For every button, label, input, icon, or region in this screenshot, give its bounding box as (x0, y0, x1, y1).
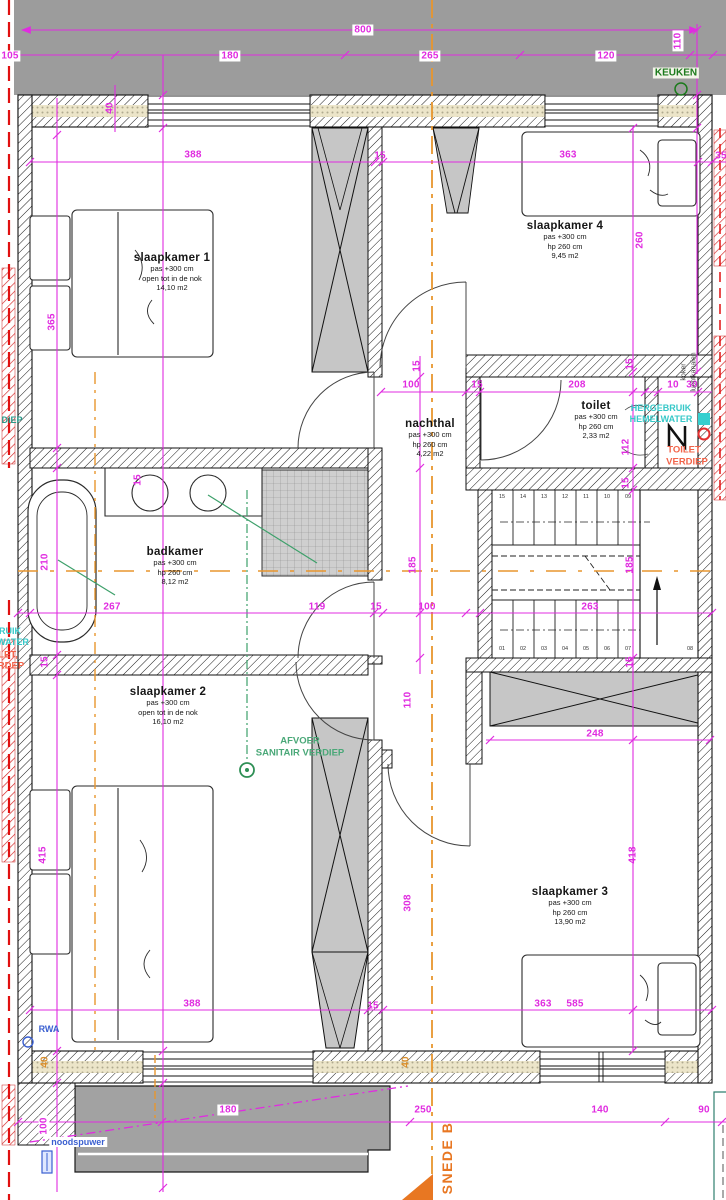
room-detail-line: hp 260 cm (527, 242, 604, 252)
stair-tread-number: 11 (583, 494, 589, 500)
dimension-label: 260 (635, 231, 646, 248)
dimension-label: 120 (595, 51, 616, 62)
dimension-label: 90 (698, 1105, 710, 1116)
room-detail-line: 4,22 m2 (405, 449, 455, 459)
room-detail-line: 13,90 m2 (532, 917, 609, 927)
stair-tread-number: 03 (541, 646, 547, 652)
dimension-label: 40 (401, 1056, 412, 1068)
shower-tiles (262, 470, 370, 576)
dimension-label: 119 (309, 602, 326, 613)
dimension-label: 10 (667, 380, 679, 391)
dimension-label: 185 (408, 556, 419, 573)
stair-tread-number: 09 (625, 494, 631, 500)
stair-tread-number: 14 (520, 494, 526, 500)
toilet-verdiep-line1: TOILET (667, 445, 701, 456)
dimension-label: 15 (40, 656, 51, 668)
toilet-verdiep-line2: VERDIEP (666, 457, 708, 468)
dimension-label: 180 (217, 1105, 238, 1116)
stair-tread-number: 05 (583, 646, 589, 652)
dimension-label: 15 (374, 151, 386, 162)
room-label-slaapkamer-4: slaapkamer 4pas +300 cmhp 260 cm9,45 m2 (527, 220, 604, 261)
stair-tread-number: 02 (520, 646, 526, 652)
staircase (492, 490, 661, 658)
dimension-label: 110 (403, 692, 414, 709)
edge-fragment-ruik: RUIK (0, 626, 21, 636)
snede-b-label: SNEDE B (439, 1122, 455, 1195)
room-detail-line: pas +300 cm (147, 558, 204, 568)
dimension-label: 112 (621, 439, 632, 456)
dimension-label: 363 (559, 150, 576, 161)
edge-fragment-rdep: RDEP (0, 661, 24, 672)
stair-tread-number: 07 (625, 646, 631, 652)
dimension-label: 263 (581, 602, 598, 613)
room-detail-line: pas +300 cm (574, 412, 617, 422)
room-label-slaapkamer-3: slaapkamer 3pas +300 cmhp 260 cm13,90 m2 (532, 886, 609, 927)
dimension-label: 15 (625, 358, 636, 370)
rwa-label: RWA (39, 1024, 60, 1034)
room-detail-line: hp 260 cm (574, 422, 617, 432)
dimension-label: 180 (219, 51, 240, 62)
dimension-label: 308 (403, 894, 414, 911)
room-detail-line: pas +300 cm (527, 232, 604, 242)
room-detail-line: 16,10 m2 (130, 717, 207, 727)
chimney-block-2 (312, 718, 368, 1048)
room-detail-line: open tot in de nok (134, 274, 211, 284)
stair-tread-number: 08 (687, 646, 693, 652)
dimension-label: 415 (38, 846, 49, 863)
floor-plan-canvas: 8001051802651201104038815363353652601515… (0, 0, 726, 1200)
dimension-label: 15 (471, 380, 483, 391)
room-label-toilet: toiletpas +300 cmhp 260 cm2,33 m2 (574, 400, 617, 441)
dimension-label: 15 (625, 656, 636, 668)
dimension-label: 100 (402, 380, 419, 391)
hemelwater-symbol (698, 413, 710, 425)
stair-tread-number: 04 (562, 646, 568, 652)
hergebruik-line2: HEMELWATER (630, 414, 693, 424)
afvoer-line1: AFVOER (280, 736, 320, 747)
dimension-label: 100 (39, 1115, 50, 1136)
dimension-label: 105 (0, 51, 21, 62)
dimension-label: 15 (621, 477, 632, 489)
dimension-label: 267 (103, 602, 120, 613)
room-detail-line: 8,12 m2 (147, 577, 204, 587)
room-name: slaapkamer 3 (532, 886, 609, 898)
dimension-label: 15 (367, 1001, 379, 1012)
room-name: badkamer (147, 546, 204, 558)
floor-plan-linework (0, 0, 726, 1200)
room-name: toilet (574, 400, 617, 412)
dimension-label: 15 (370, 602, 382, 613)
dimension-label: 210 (40, 553, 51, 570)
edge-fragment-verdiep: DIEP (1, 415, 22, 425)
room-label-slaapkamer-2: slaapkamer 2pas +300 cmopen tot in de no… (130, 686, 207, 727)
stair-tread-number: 12 (562, 494, 568, 500)
dimension-label: 250 (414, 1105, 431, 1116)
room-detail-line: hp 260 cm (405, 440, 455, 450)
bed-slaapkamer-4 (522, 132, 700, 216)
dimension-label: 110 (673, 31, 684, 52)
dimension-label: 100 (418, 602, 435, 613)
stair-tread-number: 06 (604, 646, 610, 652)
hergebruik-line1: HERGEBRUIK (631, 403, 692, 413)
room-name: nachthal (405, 418, 455, 430)
room-name: slaapkamer 1 (134, 252, 211, 264)
dimension-label: 40 (105, 102, 116, 114)
flue-funnel-nachthal (433, 128, 479, 213)
room-name: slaapkamer 2 (130, 686, 207, 698)
section-arrow (402, 1174, 433, 1200)
dimension-label: 35 (715, 151, 726, 162)
dimension-label: 140 (591, 1105, 608, 1116)
room-detail-line: hp 260 cm (532, 908, 609, 918)
noodspuwer-label: noodspuwer (49, 1137, 107, 1147)
room-name: slaapkamer 4 (527, 220, 604, 232)
dimension-label: 363 (534, 999, 551, 1010)
room-label-slaapkamer-1: slaapkamer 1pas +300 cmopen tot in de no… (134, 252, 211, 293)
room-label-badkamer: badkamerpas +300 cmhp 260 cm8,12 m2 (147, 546, 204, 587)
room-label-nachthal: nachthalpas +300 cmhp 260 cm4,22 m2 (405, 418, 455, 459)
room-detail-line: hp 260 cm (147, 568, 204, 578)
keuken-label: KEUKEN (653, 68, 699, 79)
roof-band-below (14, 0, 726, 95)
room-detail-line: pas +300 cm (134, 264, 211, 274)
room-detail-line: 9,45 m2 (527, 251, 604, 261)
edge-fragment-let: LET, (0, 650, 18, 661)
dimension-label: 15 (412, 360, 423, 372)
chimney-block-1 (312, 128, 368, 372)
koker-label: koker (681, 363, 688, 380)
dimension-label: 248 (586, 729, 603, 740)
luchtkanalen-label: luchtkanalen (691, 352, 698, 391)
dimension-label: 585 (566, 999, 583, 1010)
washbasins (105, 468, 262, 516)
dimension-label: 15 (133, 474, 144, 486)
dimension-label: 365 (47, 313, 58, 330)
wardrobe-block (490, 672, 710, 726)
dimension-label: 185 (625, 556, 636, 573)
room-detail-line: 14,10 m2 (134, 283, 211, 293)
dimension-label: 40 (40, 1056, 51, 1068)
stair-tread-number: 15 (499, 494, 505, 500)
dimension-label: 388 (184, 150, 201, 161)
room-detail-line: open tot in de nok (130, 708, 207, 718)
stair-tread-number: 10 (604, 494, 610, 500)
edge-fragment-water: WATER (0, 637, 29, 647)
stair-tread-number: 13 (541, 494, 547, 500)
dimension-label: 418 (628, 846, 639, 863)
room-detail-line: 2,33 m2 (574, 431, 617, 441)
room-detail-line: pas +300 cm (130, 698, 207, 708)
neighbor-outline (714, 1092, 726, 1200)
dimension-label: 800 (352, 25, 373, 36)
room-detail-line: pas +300 cm (405, 430, 455, 440)
bathtub (28, 480, 96, 642)
dimension-label: 208 (568, 380, 585, 391)
room-detail-line: pas +300 cm (532, 898, 609, 908)
dimension-label: 265 (419, 51, 440, 62)
stair-tread-number: 01 (499, 646, 505, 652)
dimension-label: 388 (183, 999, 200, 1010)
afvoer-line2: SANITAIR VERDIEP (256, 748, 345, 759)
